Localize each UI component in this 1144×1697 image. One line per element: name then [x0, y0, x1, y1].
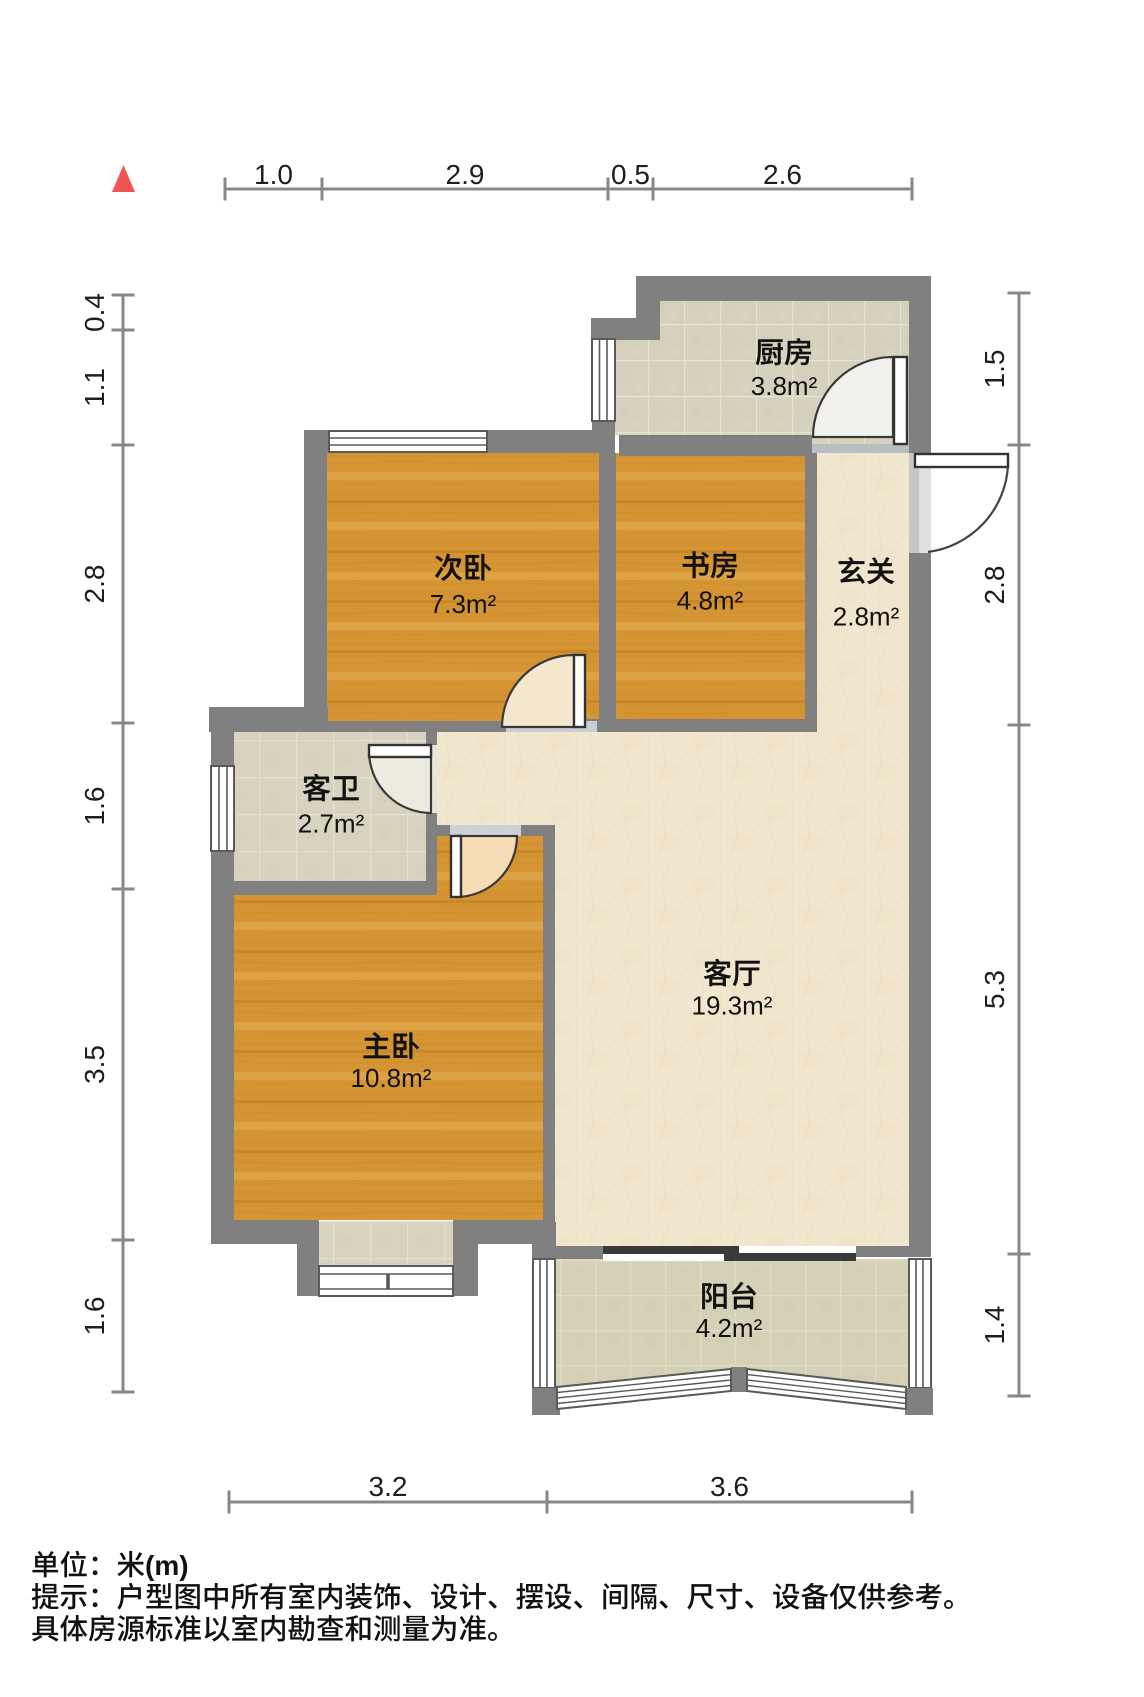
- svg-text:2.8: 2.8: [79, 565, 110, 604]
- svg-text:1.1: 1.1: [79, 368, 110, 407]
- svg-text:3.5: 3.5: [79, 1045, 110, 1084]
- svg-text:7.3m²: 7.3m²: [430, 589, 497, 619]
- svg-text:1.0: 1.0: [254, 159, 293, 190]
- svg-text:2.6: 2.6: [763, 159, 802, 190]
- svg-text:0.4: 0.4: [79, 293, 110, 332]
- svg-text:1.5: 1.5: [979, 350, 1010, 389]
- svg-text:2.7m²: 2.7m²: [298, 808, 365, 838]
- svg-text:1.4: 1.4: [979, 1306, 1010, 1345]
- svg-text:3.2: 3.2: [369, 1471, 408, 1502]
- svg-text:2.8: 2.8: [979, 566, 1010, 605]
- svg-text:1.6: 1.6: [79, 787, 110, 826]
- svg-text:1.6: 1.6: [79, 1297, 110, 1336]
- svg-text:0.5: 0.5: [611, 159, 650, 190]
- svg-text:5.3: 5.3: [979, 970, 1010, 1009]
- svg-text:2.8m²: 2.8m²: [833, 601, 900, 631]
- svg-text:4.8m²: 4.8m²: [677, 585, 744, 615]
- svg-text:10.8m²: 10.8m²: [351, 1063, 432, 1093]
- svg-text:3.6: 3.6: [710, 1471, 749, 1502]
- svg-text:(m): (m): [145, 1550, 189, 1581]
- svg-text:4.2m²: 4.2m²: [696, 1313, 763, 1343]
- svg-text:19.3m²: 19.3m²: [692, 990, 773, 1020]
- svg-text:2.9: 2.9: [446, 159, 485, 190]
- svg-text:3.8m²: 3.8m²: [751, 371, 818, 401]
